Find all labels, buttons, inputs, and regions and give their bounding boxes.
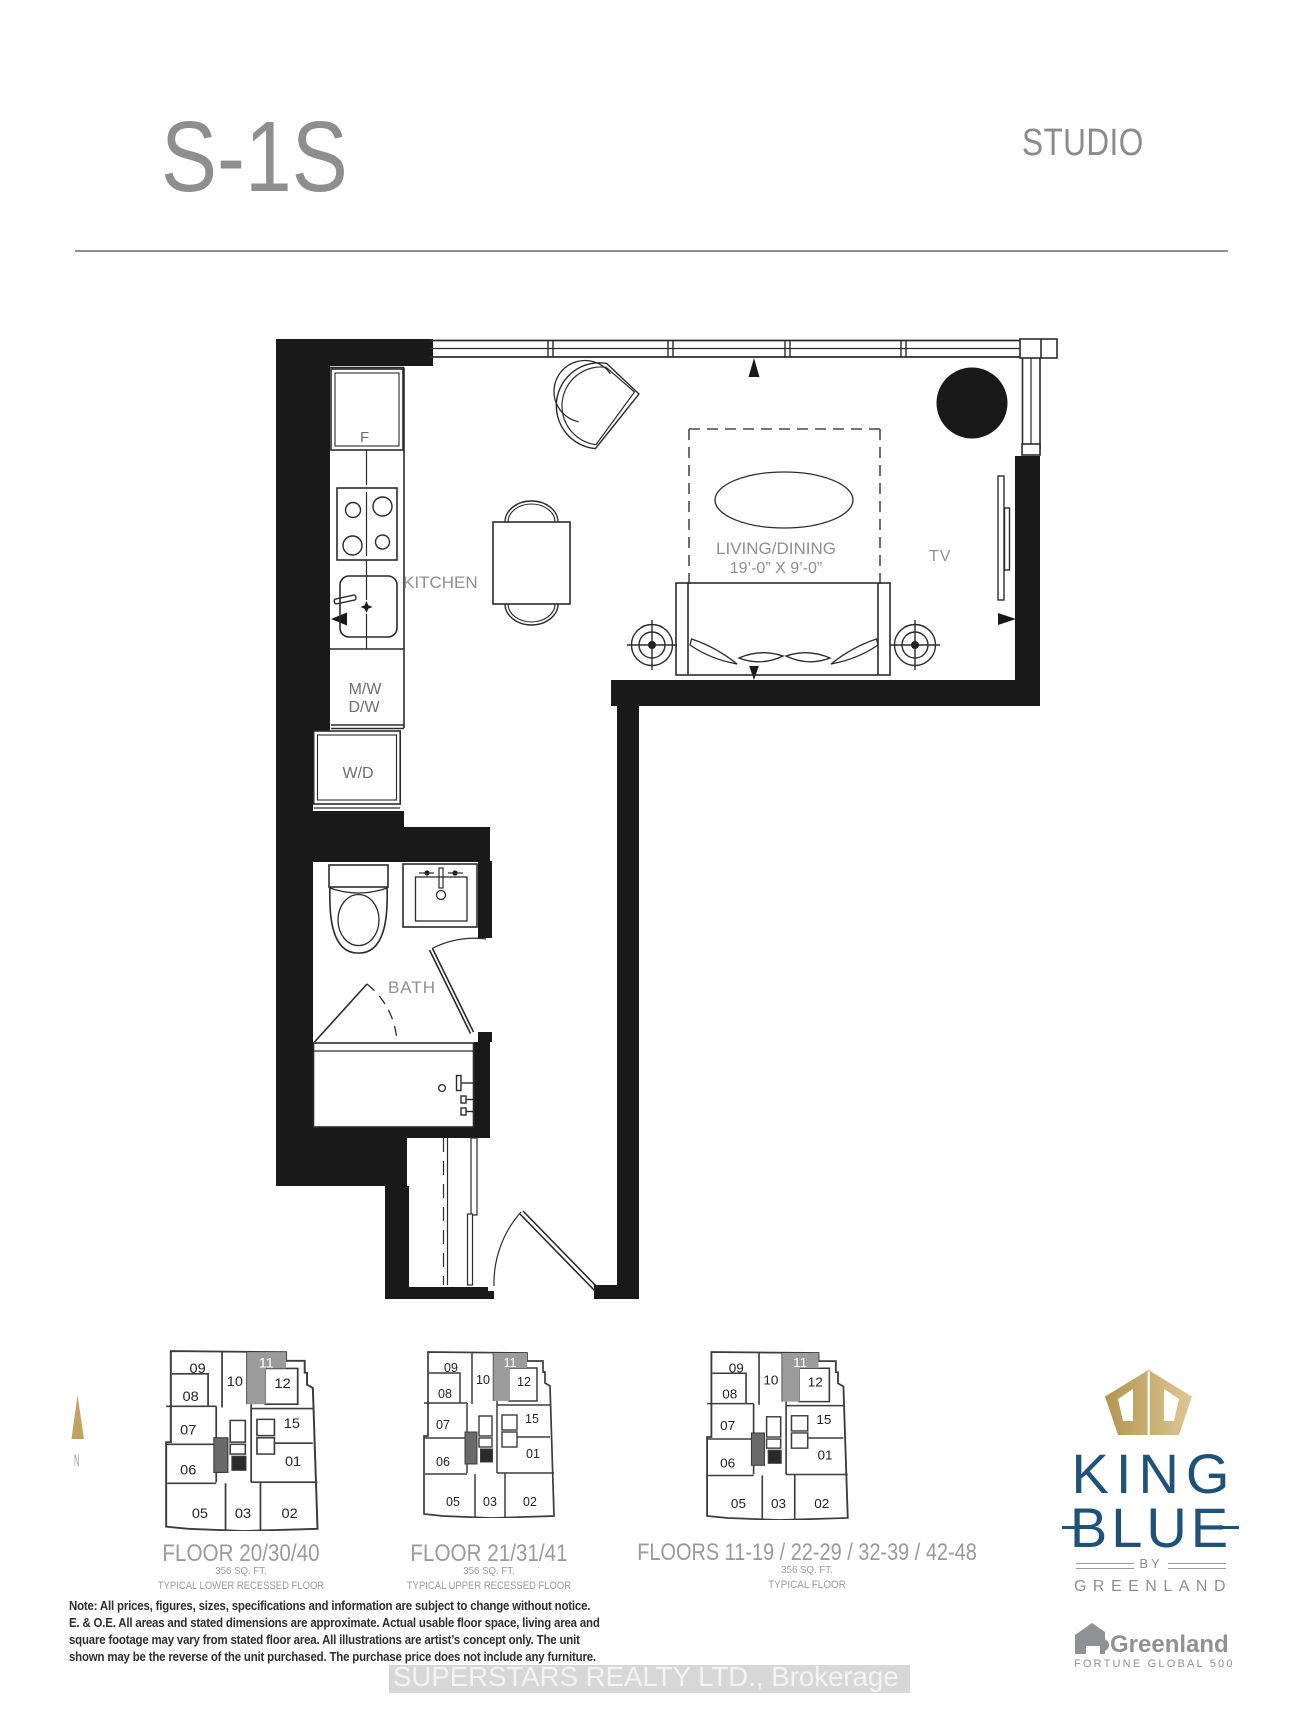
svg-text:BATH: BATH — [388, 978, 436, 997]
svg-text:D/W: D/W — [348, 699, 380, 716]
svg-text:LIVING/DINING: LIVING/DINING — [716, 539, 836, 558]
svg-text:F: F — [360, 429, 369, 446]
svg-text:19’-0” X 9’-0”: 19’-0” X 9’-0” — [730, 560, 822, 577]
svg-text:W/D: W/D — [342, 765, 373, 782]
svg-text:FORTUNE GLOBAL 500: FORTUNE GLOBAL 500 — [1074, 1658, 1232, 1670]
svg-text:KITCHEN: KITCHEN — [403, 573, 478, 592]
svg-text:Greenland: Greenland — [1110, 1631, 1229, 1658]
svg-text:TV: TV — [929, 548, 951, 565]
svg-text:M/W: M/W — [349, 681, 383, 698]
svg-text:N: N — [74, 1451, 80, 1470]
